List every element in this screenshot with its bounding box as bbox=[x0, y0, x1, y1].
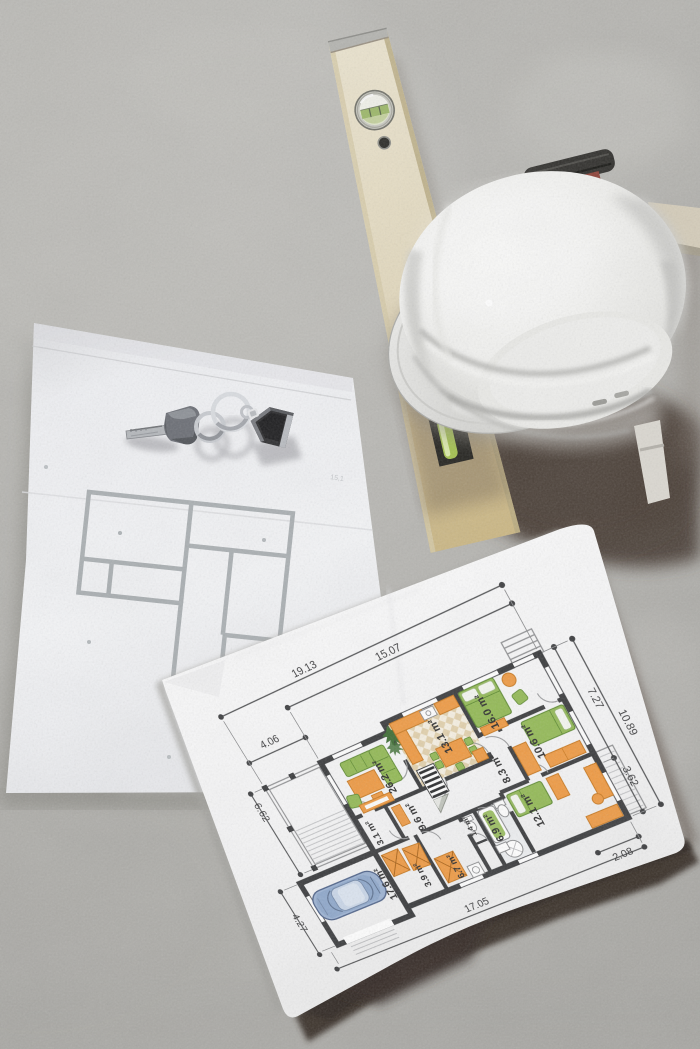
svg-text:17.05: 17.05 bbox=[463, 896, 492, 915]
svg-text:2.08: 2.08 bbox=[611, 846, 636, 864]
svg-text:3.62: 3.62 bbox=[619, 765, 640, 788]
svg-text:4.27: 4.27 bbox=[289, 913, 309, 934]
svg-text:8.3 m²: 8.3 m² bbox=[488, 752, 514, 784]
svg-text:7.27: 7.27 bbox=[584, 686, 605, 710]
svg-text:6.62: 6.62 bbox=[251, 802, 271, 824]
svg-text:4.06: 4.06 bbox=[258, 733, 282, 751]
svg-text:9.6 m²: 9.6 m² bbox=[404, 801, 430, 832]
